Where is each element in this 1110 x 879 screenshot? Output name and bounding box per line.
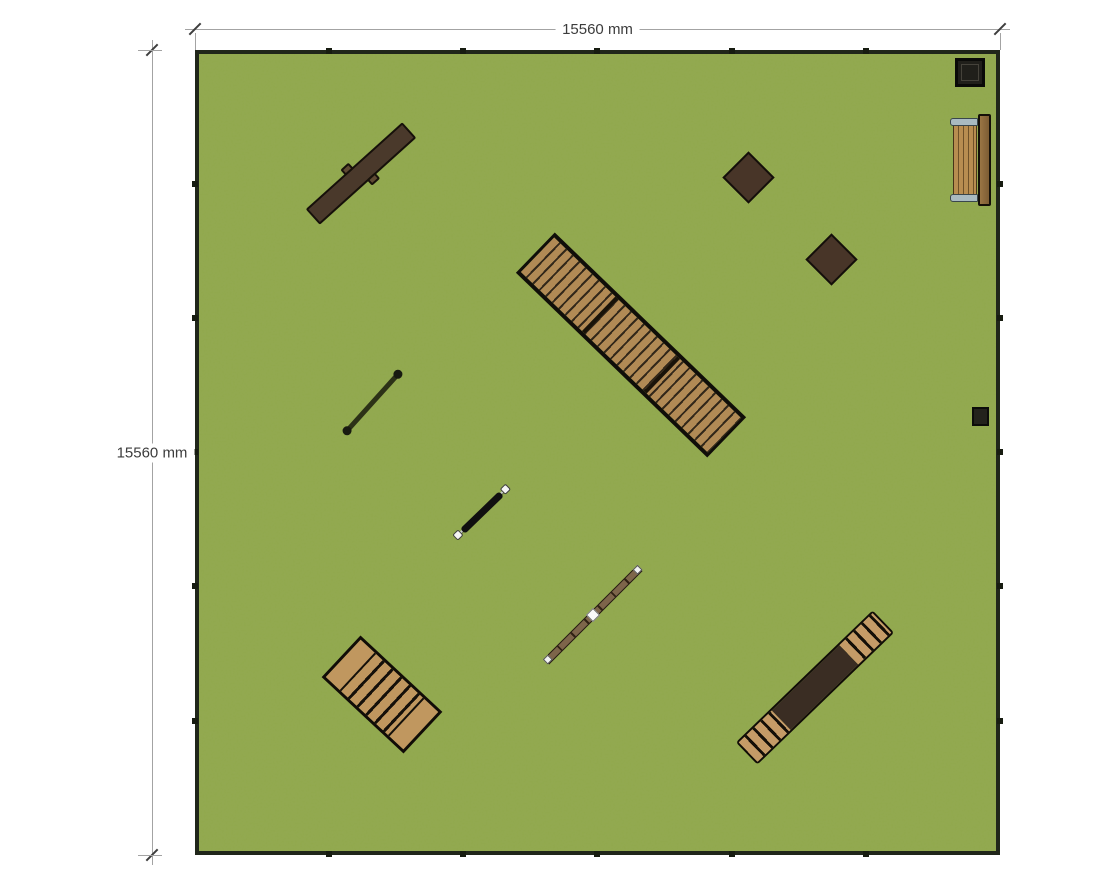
dimension-top: 15560 mm	[195, 21, 1000, 37]
fence-post	[997, 449, 1003, 455]
fence-post	[326, 48, 332, 54]
fence-post	[326, 851, 332, 857]
fence-post	[997, 718, 1003, 724]
walkway-joint	[582, 296, 618, 333]
fence-post	[460, 851, 466, 857]
fence-post	[594, 48, 600, 54]
bin-inner-frame	[961, 64, 979, 81]
extension-line	[195, 33, 196, 50]
park-bench[interactable]	[950, 114, 991, 206]
grass-texture	[199, 54, 996, 851]
fence-post	[863, 851, 869, 857]
fence-post	[192, 181, 198, 187]
extension-line	[1000, 33, 1001, 50]
fence-post	[863, 48, 869, 54]
extension-line	[138, 855, 162, 856]
small-box[interactable]	[972, 407, 989, 426]
dimension-left-label: 15560 mm	[110, 443, 195, 462]
square-bin[interactable]	[955, 58, 985, 87]
bench-backrest	[978, 114, 991, 206]
fence-post	[997, 181, 1003, 187]
bench-seat-slats	[953, 124, 977, 196]
dimension-top-label: 15560 mm	[555, 20, 640, 39]
site-plan-canvas: 15560 mm 15560 mm	[0, 0, 1110, 879]
fence-post	[997, 315, 1003, 321]
fence-post	[192, 315, 198, 321]
dimension-left: 15560 mm	[144, 50, 160, 855]
fence-post	[460, 48, 466, 54]
fence-post	[192, 583, 198, 589]
fence-post	[594, 851, 600, 857]
extension-line	[138, 50, 162, 51]
bench-armrest	[950, 118, 978, 126]
lawn-area[interactable]	[195, 50, 1000, 855]
walkway-joint	[644, 356, 680, 393]
fence-post	[729, 48, 735, 54]
bench-armrest	[950, 194, 978, 202]
fence-post	[192, 718, 198, 724]
fence-post	[729, 851, 735, 857]
fence-post	[997, 583, 1003, 589]
